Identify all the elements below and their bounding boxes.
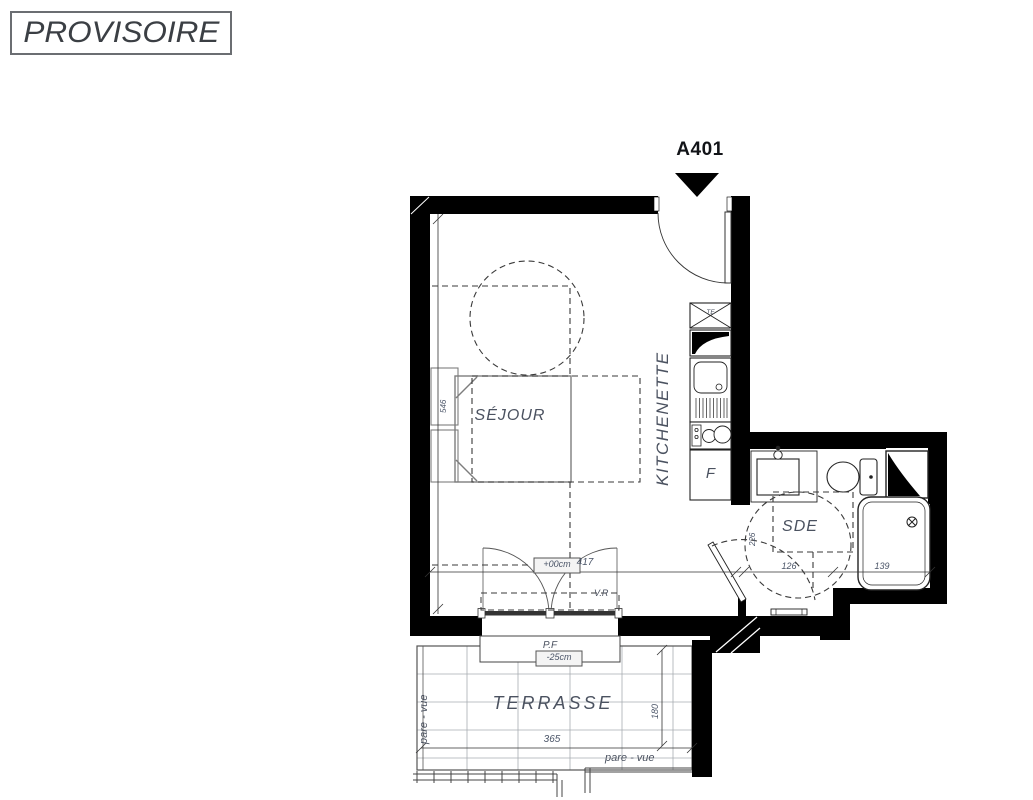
provisoire-stamp-text: PROVISOIRE [23,16,219,50]
turning-circle-sejour [470,261,584,375]
terrace-railing [413,768,692,797]
door-jambs [654,197,732,211]
unit-number-label: A401 [663,139,737,161]
dimension-546: 546 [440,400,448,413]
dimension-417: 417 [565,558,605,568]
provisoire-stamp: PROVISOIRE [10,11,232,55]
room-label-sde: SDE [772,519,828,535]
dimension-139: 139 [867,562,897,571]
dimension-180: 180 [651,704,660,719]
nightstand [431,430,458,482]
dimension-365: 365 [535,735,569,745]
roller-shutter-label: V.R [594,589,608,598]
toilet-tank [860,459,877,495]
french-window-label: P.F [480,641,620,651]
bed [431,368,571,482]
entrance-door [658,212,731,283]
fridge-label: F [695,466,726,481]
room-label-kitchenette: KITCHENETTE [654,351,671,486]
level-label-terrasse: -25cm [536,653,582,662]
washbasin [757,459,799,495]
floorplan-drawing [0,0,1033,800]
privacy-screen-label-bottom: pare - vue [605,753,655,764]
turning-circle-sde [745,492,851,598]
vent-label: TE [700,310,721,317]
room-label-terrasse: TERRASSE [472,694,634,712]
toilet-bowl [827,462,859,492]
floorplan-page: PROVISOIRE A401 SÉJOUR KITCHENETTE SDE T… [0,0,1033,800]
entrance-direction-arrow [675,173,719,197]
dimension-226: 226 [749,533,757,546]
dimension-126: 126 [774,562,804,571]
privacy-screen-label-left: pare - vue [419,694,430,744]
towel-radiator [771,609,807,615]
room-label-sejour: SÉJOUR [450,408,570,424]
